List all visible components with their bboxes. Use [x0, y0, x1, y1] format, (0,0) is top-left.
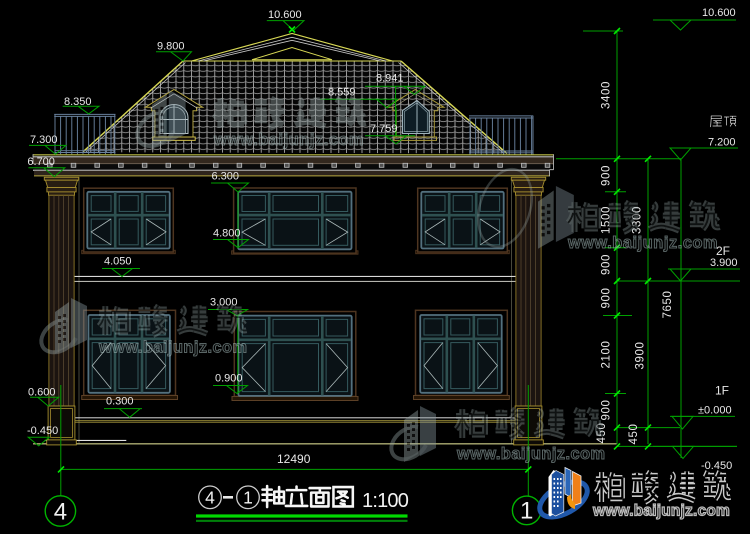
svg-text:900: 900: [601, 165, 613, 186]
svg-text:4: 4: [205, 488, 215, 508]
svg-text:6.700: 6.700: [27, 156, 55, 168]
svg-text:www.baijunjz.com: www.baijunjz.com: [456, 445, 606, 463]
svg-text:7.300: 7.300: [30, 134, 58, 146]
svg-text:10.600: 10.600: [268, 9, 302, 21]
svg-text:3900: 3900: [635, 342, 647, 370]
svg-text:3.900: 3.900: [710, 257, 738, 269]
svg-text:900: 900: [601, 400, 613, 421]
svg-text:10.600: 10.600: [702, 7, 736, 19]
svg-text:www.baijunjz.com: www.baijunjz.com: [98, 339, 248, 357]
svg-text:4.050: 4.050: [104, 256, 132, 268]
svg-text:2100: 2100: [601, 341, 613, 369]
svg-text:1:100: 1:100: [362, 490, 409, 512]
svg-text:1: 1: [520, 498, 533, 525]
svg-text:4.800: 4.800: [213, 228, 241, 240]
svg-text:900: 900: [601, 254, 613, 275]
svg-text:7.759: 7.759: [370, 123, 398, 135]
svg-text:8.350: 8.350: [64, 96, 92, 108]
svg-text:450: 450: [628, 424, 640, 445]
svg-text:www.baijunjz.com: www.baijunjz.com: [592, 503, 730, 520]
svg-text:1F: 1F: [715, 384, 729, 398]
svg-text:0.300: 0.300: [106, 396, 134, 408]
svg-text:0.900: 0.900: [215, 373, 243, 385]
svg-text:3400: 3400: [601, 81, 613, 109]
svg-text:-0.450: -0.450: [27, 425, 58, 437]
svg-text:www.baijunjz.com: www.baijunjz.com: [213, 131, 364, 149]
svg-text:-0.450: -0.450: [701, 460, 732, 472]
svg-text:±0.000: ±0.000: [698, 405, 732, 417]
svg-text:7650: 7650: [662, 291, 674, 319]
svg-text:0.600: 0.600: [28, 387, 56, 399]
svg-text:4: 4: [54, 499, 67, 526]
svg-text:7.200: 7.200: [708, 137, 736, 149]
svg-text:1: 1: [243, 488, 253, 508]
svg-text:900: 900: [601, 288, 613, 309]
svg-text:8.941: 8.941: [376, 73, 404, 85]
svg-text:www.baijunjz.com: www.baijunjz.com: [567, 234, 718, 252]
svg-text:9.800: 9.800: [157, 41, 185, 53]
svg-text:6.300: 6.300: [212, 171, 240, 183]
svg-text:12490: 12490: [277, 452, 311, 466]
